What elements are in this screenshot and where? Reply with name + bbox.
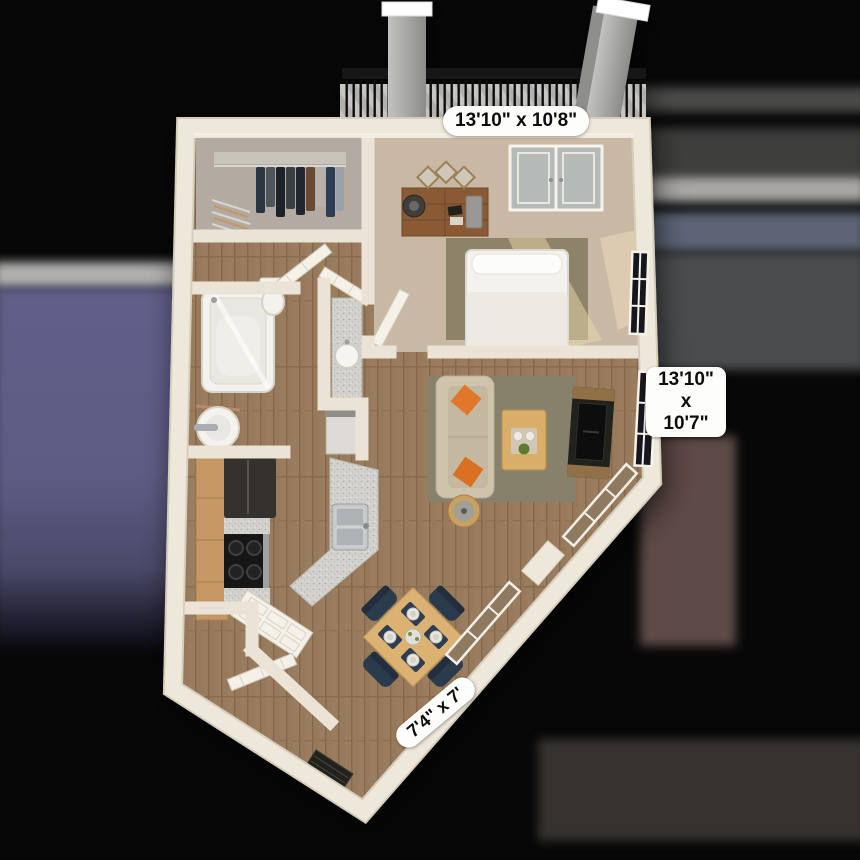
tv-stand: [567, 387, 615, 480]
balcony-column-left: [382, 2, 432, 124]
side-table: [448, 495, 480, 527]
bed: [466, 250, 568, 350]
counter: [224, 518, 270, 534]
wire-shelf-top: [214, 152, 346, 164]
french-doors: [510, 146, 602, 210]
dimension-label-living-line2: x: [648, 391, 724, 413]
floor-plan-scene: 13'10" x 10'8" 13'10" x 10'7" 7'4" x 7': [0, 0, 860, 860]
kitchen-cabinets: [196, 456, 228, 620]
dining-area: [360, 584, 466, 690]
shower-head: [211, 297, 217, 303]
pillow: [472, 254, 562, 274]
tray: [466, 196, 482, 228]
vanity-sink: [332, 298, 362, 398]
washer-unit: [326, 408, 360, 454]
coffee-table: [502, 410, 546, 470]
dimension-label-living: 13'10" x 10'7": [646, 367, 726, 437]
stove: [224, 534, 269, 588]
dresser: [402, 188, 488, 236]
kitchen-sink: [332, 504, 369, 550]
bedroom-window: [630, 252, 649, 335]
dimension-label-living-line3: 10'7": [648, 413, 724, 435]
faucet: [194, 424, 218, 431]
plant: [519, 444, 530, 455]
dimension-label-living-line1: 13'10": [648, 369, 724, 391]
sofa: [436, 376, 494, 498]
refrigerator: [224, 456, 276, 518]
dimension-label-bedroom: 13'10" x 10'8": [443, 106, 589, 136]
centerpiece: [405, 629, 421, 645]
